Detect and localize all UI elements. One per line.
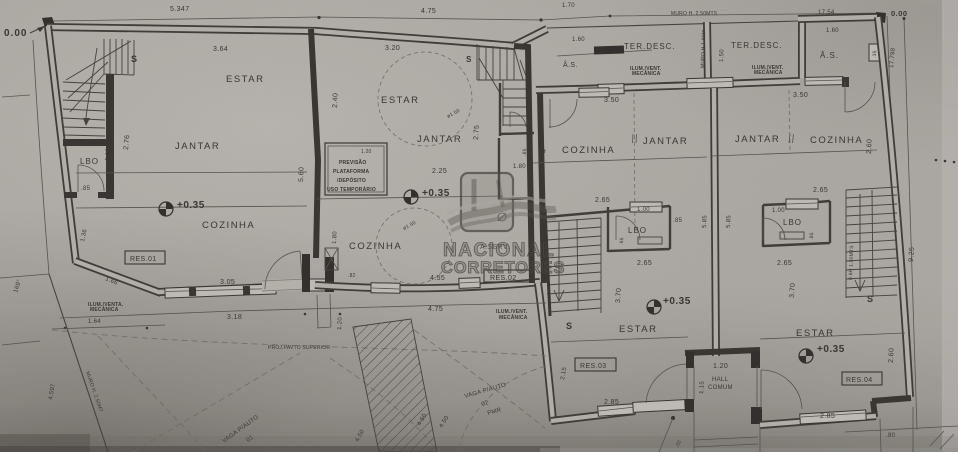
svg-text:MURO H. 2.50MTS: MURO H. 2.50MTS: [671, 11, 718, 17]
svg-text:3.64: 3.64: [213, 46, 228, 53]
svg-text:1.70: 1.70: [562, 3, 575, 9]
svg-text:3.50: 3.50: [604, 97, 619, 104]
svg-text:3.20: 3.20: [385, 45, 400, 52]
svg-text:.82: .82: [348, 273, 356, 279]
svg-text:USO TEMPORÁRIO: USO TEMPORÁRIO: [327, 186, 376, 193]
svg-text:9.25: 9.25: [908, 247, 916, 263]
svg-text:JANTAR: JANTAR: [417, 134, 462, 145]
svg-text:1.20: 1.20: [361, 149, 372, 155]
svg-text:5.347: 5.347: [170, 6, 190, 13]
svg-text:S: S: [566, 321, 572, 331]
svg-text:HALL: HALL: [712, 377, 729, 383]
svg-text:MECÂNICA: MECÂNICA: [499, 314, 528, 321]
svg-text:COZINHA: COZINHA: [349, 241, 402, 252]
svg-text:4.75: 4.75: [428, 306, 443, 313]
svg-text:PREVISÃO: PREVISÃO: [339, 159, 366, 166]
svg-text:3.70: 3.70: [615, 288, 623, 304]
svg-text:2.75: 2.75: [473, 125, 481, 141]
svg-text:2.65: 2.65: [637, 260, 652, 267]
svg-text:.80: .80: [886, 433, 896, 439]
svg-text:+0.35: +0.35: [177, 200, 205, 211]
svg-text:ESTAR: ESTAR: [226, 74, 264, 85]
svg-text:LBO: LBO: [628, 226, 647, 235]
svg-text:1.80: 1.80: [332, 231, 338, 244]
svg-text:1.15: 1.15: [699, 381, 706, 395]
svg-text:ø: ø: [542, 149, 546, 155]
svg-text:ESTAR: ESTAR: [381, 95, 419, 106]
svg-text:RES.03: RES.03: [580, 363, 607, 370]
svg-text:2.25: 2.25: [432, 168, 447, 175]
svg-text:1.20: 1.20: [713, 363, 728, 370]
svg-text:0.6H 1.20MTS: 0.6H 1.20MTS: [848, 245, 855, 280]
svg-text:TER.DESC.: TER.DESC.: [731, 41, 783, 50]
svg-text:Â.S.: Â.S.: [820, 51, 839, 60]
svg-text:Â.S.: Â.S.: [563, 60, 578, 69]
svg-text:.85: .85: [81, 186, 91, 192]
svg-text:LBO: LBO: [80, 157, 99, 166]
svg-text:5.85: 5.85: [702, 215, 708, 228]
svg-text:1.64: 1.64: [88, 319, 101, 325]
svg-text:S: S: [867, 294, 873, 304]
svg-text:2.65: 2.65: [813, 187, 828, 194]
svg-text:S: S: [131, 54, 137, 64]
svg-text:2.85: 2.85: [820, 413, 835, 420]
svg-text:1.60: 1.60: [572, 37, 585, 43]
svg-text:0.00: 0.00: [891, 9, 908, 18]
svg-text:CORRETORES: CORRETORES: [441, 259, 565, 277]
svg-text:TER.DESC.: TER.DESC.: [624, 42, 676, 51]
svg-text:PROJ.PAVTO SUPERIOR: PROJ.PAVTO SUPERIOR: [268, 345, 330, 351]
svg-text:S: S: [466, 55, 472, 64]
svg-text:.85: .85: [673, 218, 683, 224]
svg-text:JANTAR: JANTAR: [643, 136, 688, 147]
svg-text:LBO: LBO: [783, 218, 802, 227]
svg-text:COZINHA: COZINHA: [810, 135, 863, 146]
svg-text:RES.01: RES.01: [130, 256, 157, 263]
svg-text:JANTAR: JANTAR: [735, 134, 780, 145]
svg-text:RES.04: RES.04: [846, 377, 873, 384]
svg-text:1.80: 1.80: [513, 164, 526, 170]
svg-text:ESTAR: ESTAR: [796, 328, 834, 339]
svg-text:+0.35: +0.35: [817, 344, 845, 355]
svg-text:1.20: 1.20: [337, 317, 344, 331]
svg-text:NACIONAL: NACIONAL: [443, 240, 555, 261]
svg-text:3.50: 3.50: [793, 92, 808, 99]
svg-text:MECÂNICA: MECÂNICA: [632, 70, 661, 77]
svg-text:1.00: 1.00: [637, 207, 650, 213]
svg-text:5.60: 5.60: [298, 167, 306, 182]
svg-text:3.70: 3.70: [789, 283, 797, 299]
svg-text:1.10: 1.10: [105, 148, 112, 162]
svg-text:1.50: 1.50: [719, 49, 725, 62]
svg-text:2.85: 2.85: [604, 399, 619, 406]
svg-text:PLATAFORMA: PLATAFORMA: [333, 169, 369, 175]
svg-text:JANTAR: JANTAR: [175, 141, 220, 152]
svg-text:2.60: 2.60: [888, 348, 896, 363]
svg-text:+0.35: +0.35: [422, 188, 450, 199]
svg-text:0.00: 0.00: [4, 28, 27, 39]
svg-text:+0.35: +0.35: [663, 296, 691, 307]
svg-text:2.60: 2.60: [866, 139, 874, 154]
svg-text:3.18: 3.18: [227, 314, 242, 321]
svg-text:COMUM: COMUM: [708, 385, 733, 391]
svg-text:/DEPÓSITO: /DEPÓSITO: [337, 176, 366, 184]
svg-text:MECÂNICA: MECÂNICA: [754, 69, 783, 76]
svg-text:.65: .65: [619, 237, 625, 245]
svg-text:1.00: 1.00: [772, 208, 785, 214]
svg-text:1.60: 1.60: [826, 28, 839, 34]
svg-text:2.76: 2.76: [123, 134, 131, 150]
svg-text:COZINHA: COZINHA: [562, 145, 615, 156]
svg-text:2.40: 2.40: [332, 93, 340, 108]
svg-text:2.65: 2.65: [595, 197, 610, 204]
svg-text:3.05: 3.05: [220, 279, 235, 286]
svg-text:5.85: 5.85: [726, 215, 732, 228]
svg-text:.35: .35: [872, 50, 878, 58]
svg-text:ESTAR: ESTAR: [619, 324, 657, 335]
svg-text:4.75: 4.75: [421, 8, 436, 15]
svg-text:COZINHA: COZINHA: [202, 220, 255, 231]
svg-text:MECÂNICA: MECÂNICA: [90, 306, 119, 313]
svg-text:2.65: 2.65: [777, 260, 792, 267]
svg-text:.85: .85: [809, 232, 815, 240]
